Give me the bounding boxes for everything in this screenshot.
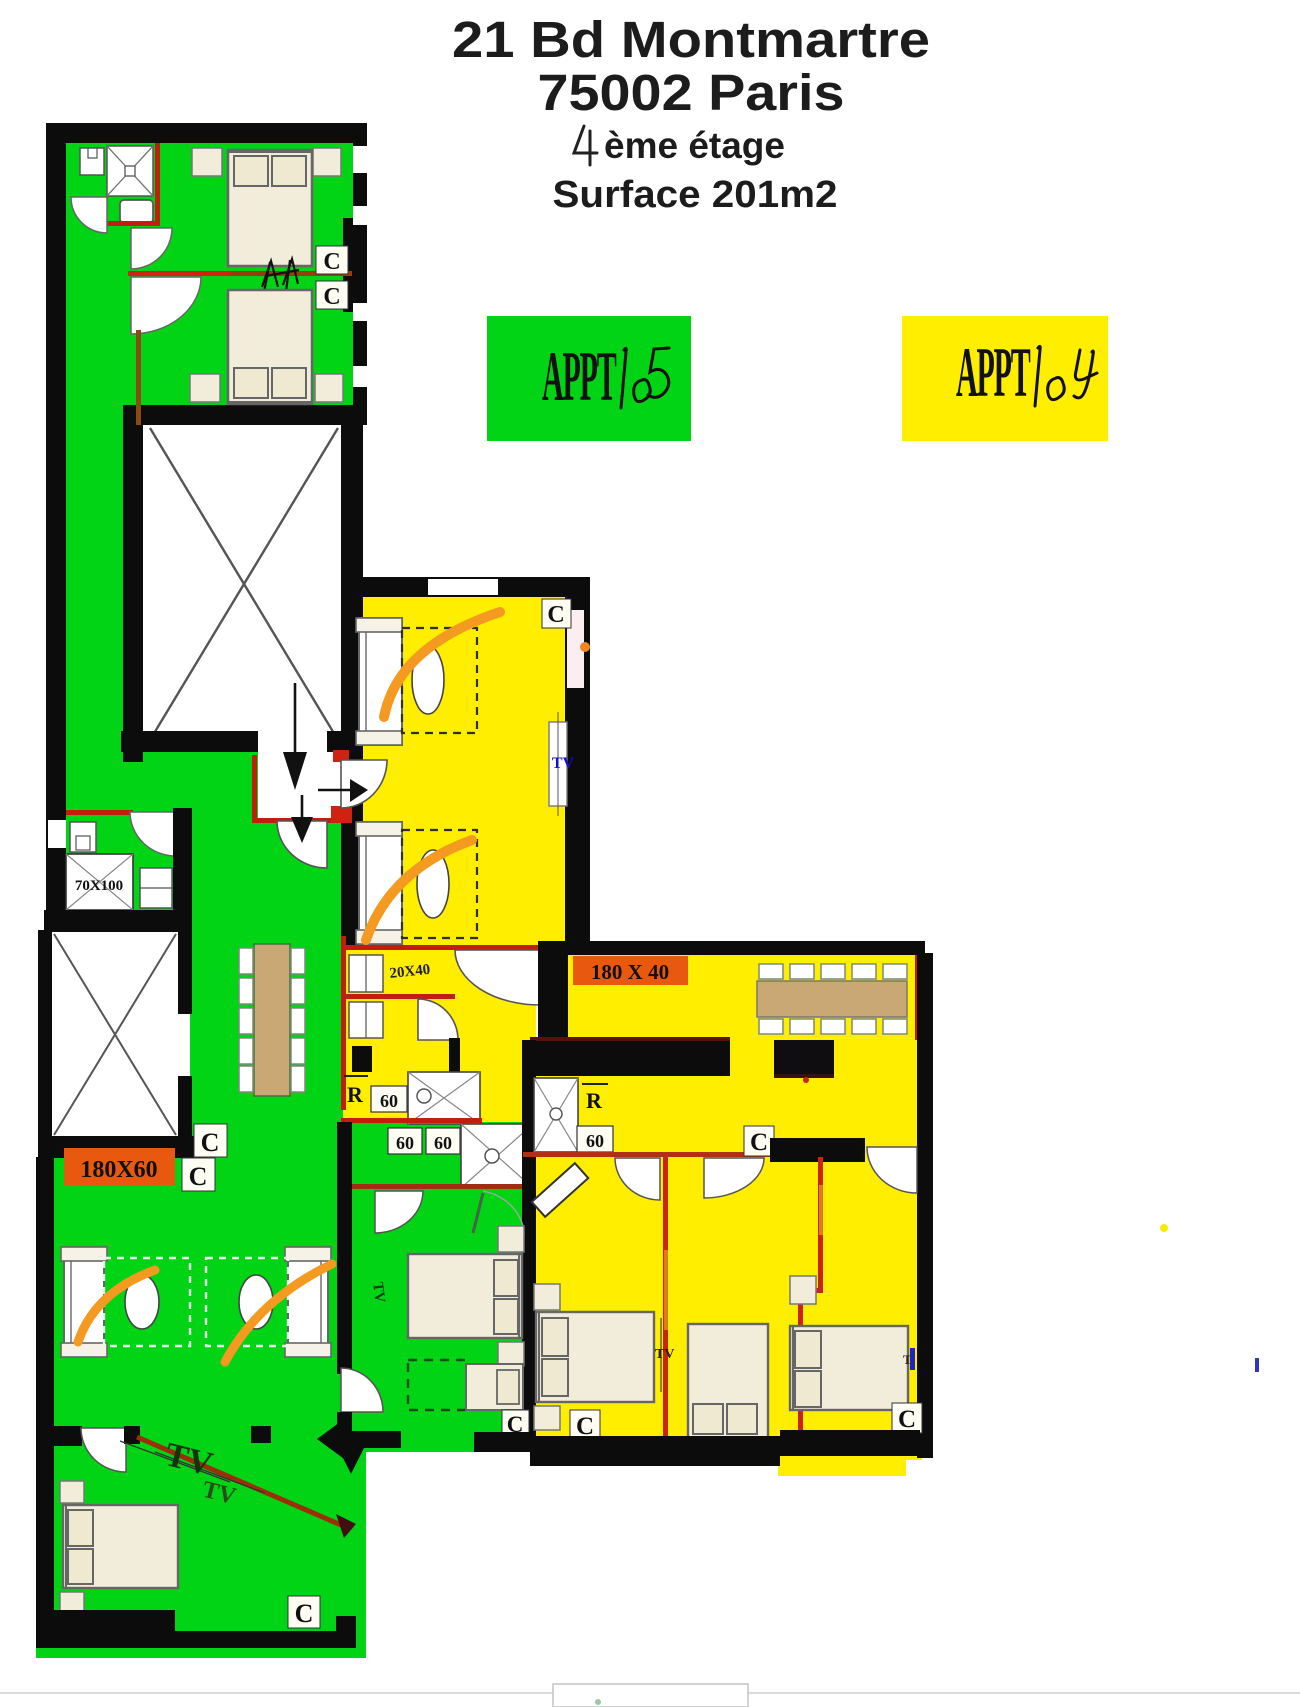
svg-text:ème étage: ème étage	[604, 125, 785, 166]
svg-text:180X60: 180X60	[80, 1157, 157, 1183]
svg-text:Surface 201m2: Surface 201m2	[553, 174, 838, 216]
svg-text:C: C	[750, 1129, 768, 1156]
svg-text:R: R	[347, 1082, 364, 1107]
svg-text:60: 60	[380, 1091, 398, 1111]
svg-text:C: C	[323, 284, 340, 310]
svg-text:APPT: APPT	[956, 332, 1031, 411]
svg-text:C: C	[201, 1128, 220, 1157]
svg-text:R: R	[586, 1088, 603, 1113]
svg-text:C: C	[898, 1406, 916, 1433]
svg-text:C: C	[189, 1162, 208, 1191]
svg-text:21 Bd Montmartre: 21 Bd Montmartre	[452, 11, 930, 68]
svg-text:C: C	[576, 1413, 594, 1440]
svg-text:60: 60	[434, 1133, 452, 1153]
svg-text:C: C	[323, 249, 340, 275]
svg-text:75002 Paris: 75002 Paris	[538, 64, 845, 121]
svg-text:APPT: APPT	[542, 336, 617, 415]
svg-text:C: C	[295, 1599, 314, 1628]
svg-text:TV: TV	[552, 755, 575, 772]
svg-text:TV: TV	[369, 1281, 387, 1304]
svg-text:60: 60	[586, 1131, 604, 1151]
svg-text:TV: TV	[655, 1347, 674, 1362]
svg-text:60: 60	[396, 1133, 414, 1153]
svg-text:180 X 40: 180 X 40	[591, 960, 669, 984]
svg-text:70X100: 70X100	[75, 878, 123, 894]
svg-text:C: C	[547, 602, 564, 628]
